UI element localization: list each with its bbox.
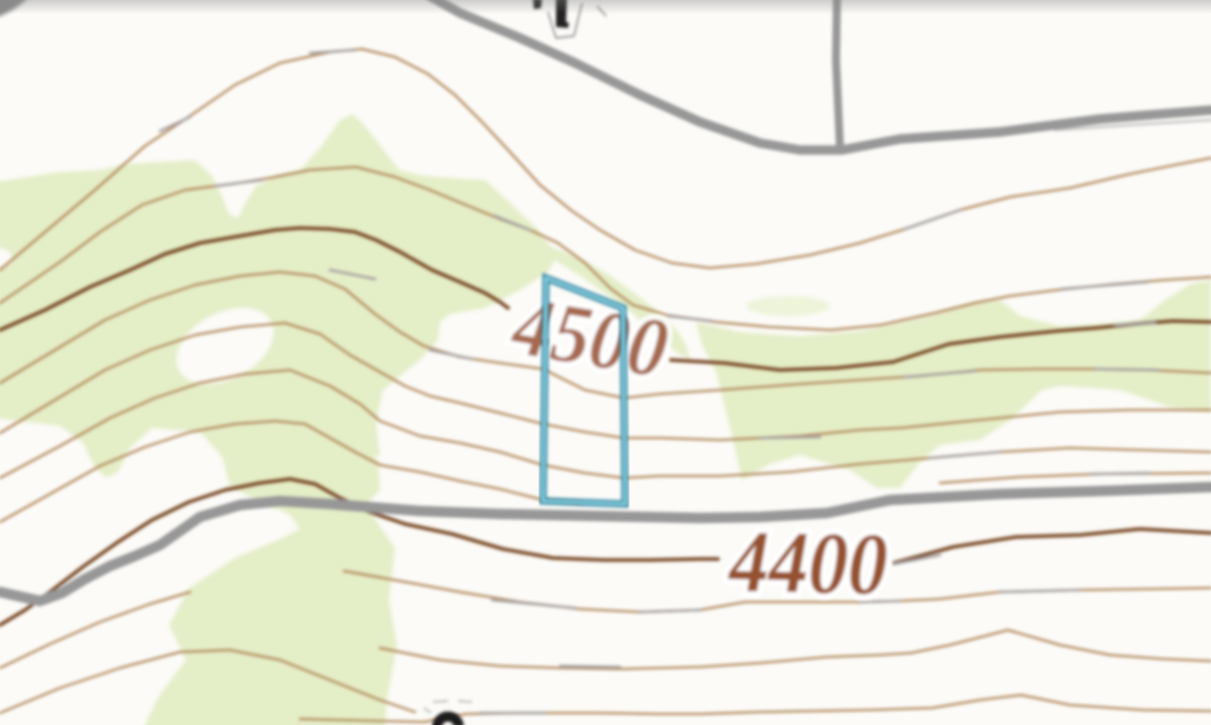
svg-text:4400: 4400: [727, 514, 888, 614]
